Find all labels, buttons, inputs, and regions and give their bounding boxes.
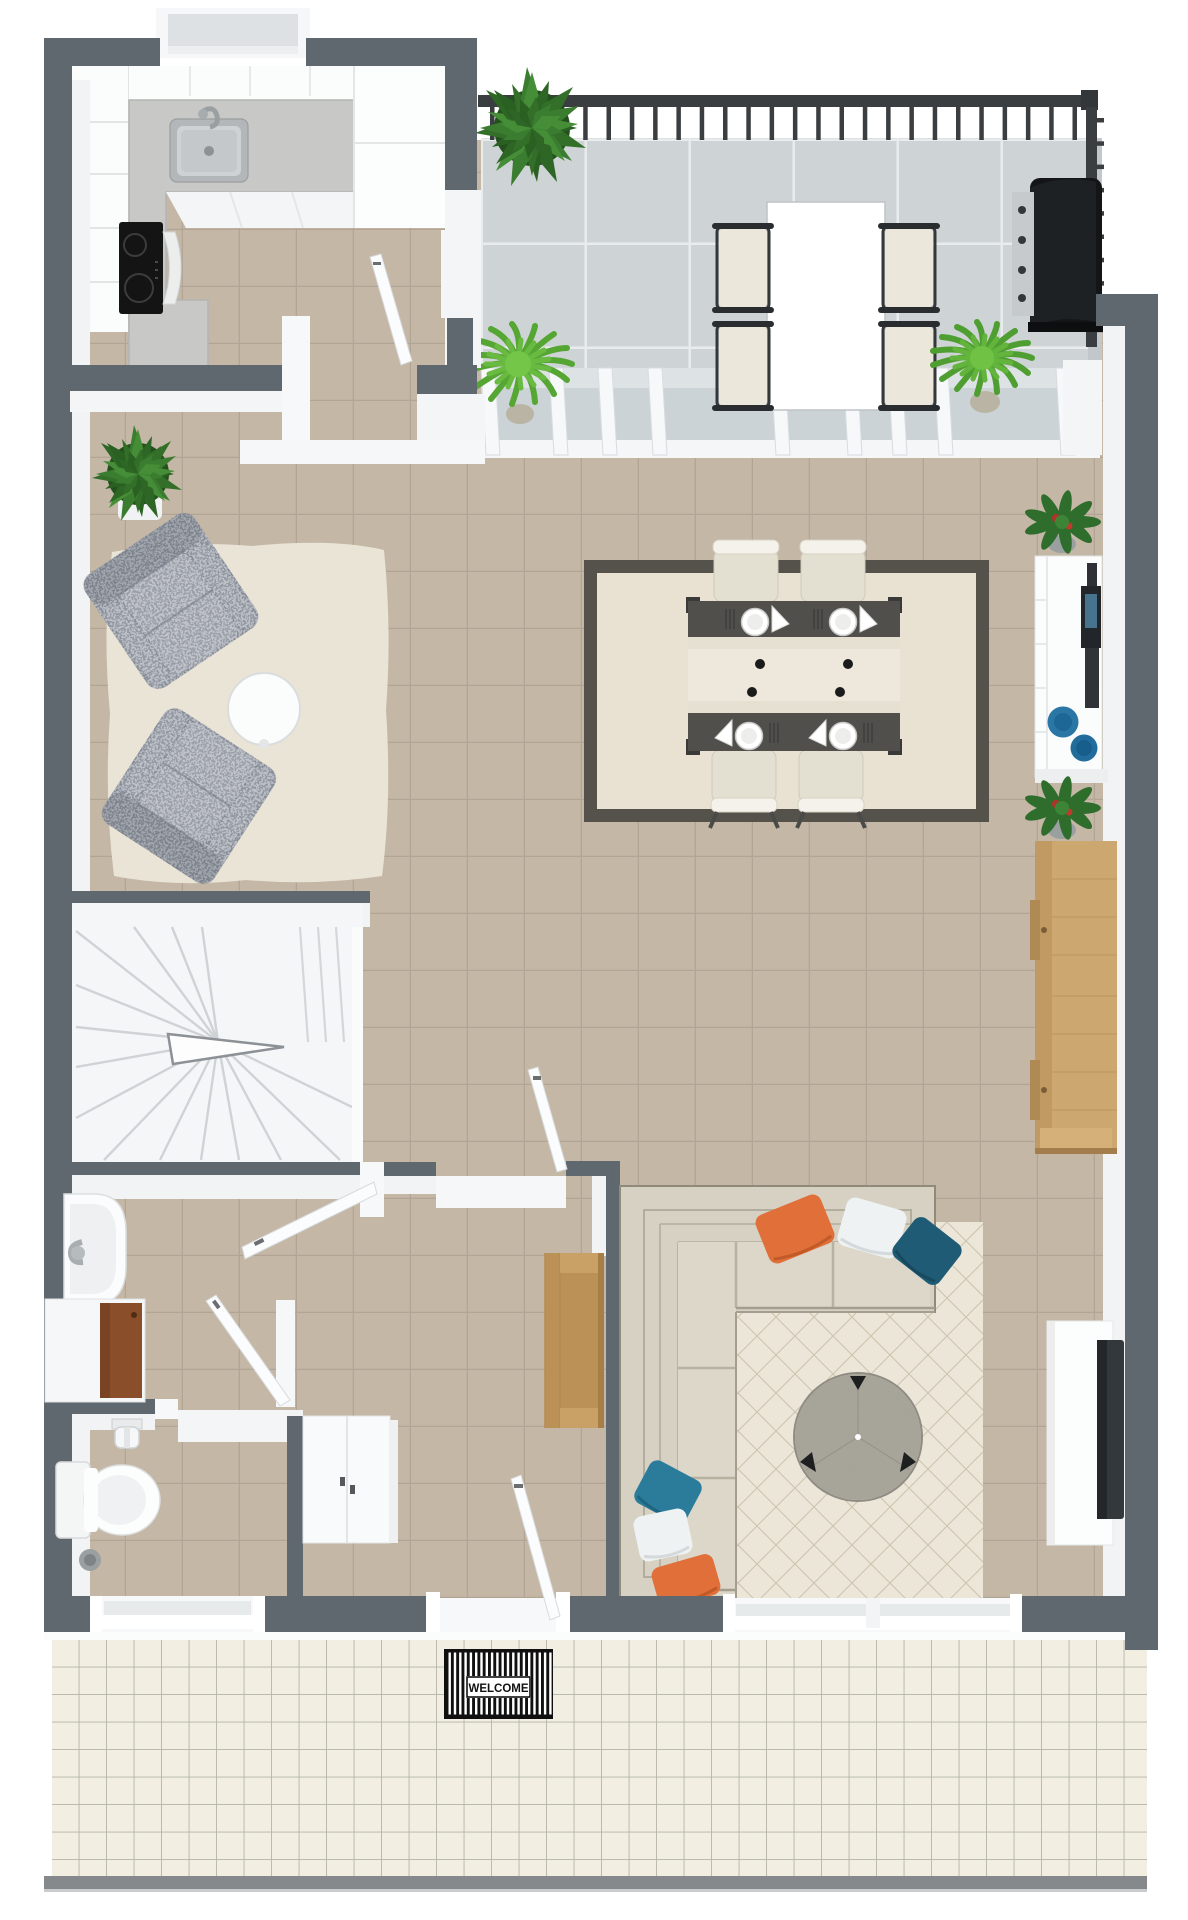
svg-text:WELCOME: WELCOME <box>468 1683 528 1695</box>
